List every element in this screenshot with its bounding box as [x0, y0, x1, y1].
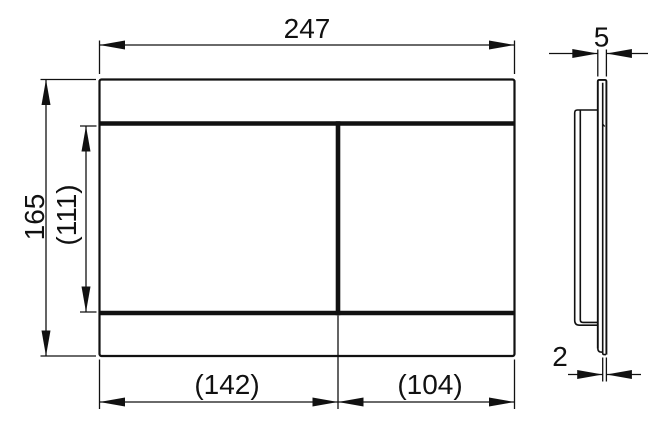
arrowhead-left: [100, 398, 126, 407]
arrowhead-left: [606, 370, 632, 379]
arrowhead-right: [313, 398, 339, 407]
dim-label-overall-width: 247: [284, 13, 331, 44]
dim-inner-height: (111): [51, 126, 97, 312]
plate-profile: [598, 80, 607, 355]
frame-outline: [575, 110, 598, 325]
arrowhead-right: [489, 398, 515, 407]
arrowhead-left: [606, 49, 632, 58]
dim-label-edge-thickness: 2: [552, 341, 568, 372]
dim-label-inner-height: (111): [51, 184, 82, 245]
arrowhead-left: [100, 41, 126, 50]
technical-drawing-canvas: 247 165 (111) (142) (104): [0, 0, 668, 434]
arrowhead-left: [338, 398, 364, 407]
front-view: [100, 80, 515, 357]
dim-label-right-section: (104): [397, 369, 462, 400]
arrowhead-down: [82, 287, 91, 313]
dim-label-plate-thickness: 5: [594, 22, 610, 53]
side-view: [575, 80, 607, 355]
arrowhead-up: [82, 126, 91, 152]
arrowhead-right: [577, 370, 603, 379]
dim-plate-thickness: 5: [549, 22, 648, 77]
dim-edge-thickness: 2: [552, 341, 641, 382]
flush-plate-drawing: 247 165 (111) (142) (104): [0, 0, 668, 434]
dim-overall-width: 247: [100, 13, 515, 74]
dim-label-left-section: (142): [194, 369, 259, 400]
mounting-frame-profile: [575, 110, 598, 325]
dim-label-overall-height: 165: [19, 194, 50, 241]
arrowhead-down: [42, 331, 51, 357]
frame-inner-line: [580, 110, 598, 322]
arrowhead-up: [42, 80, 51, 106]
dim-right-section: (104): [338, 360, 515, 410]
arrowhead-right: [489, 41, 515, 50]
